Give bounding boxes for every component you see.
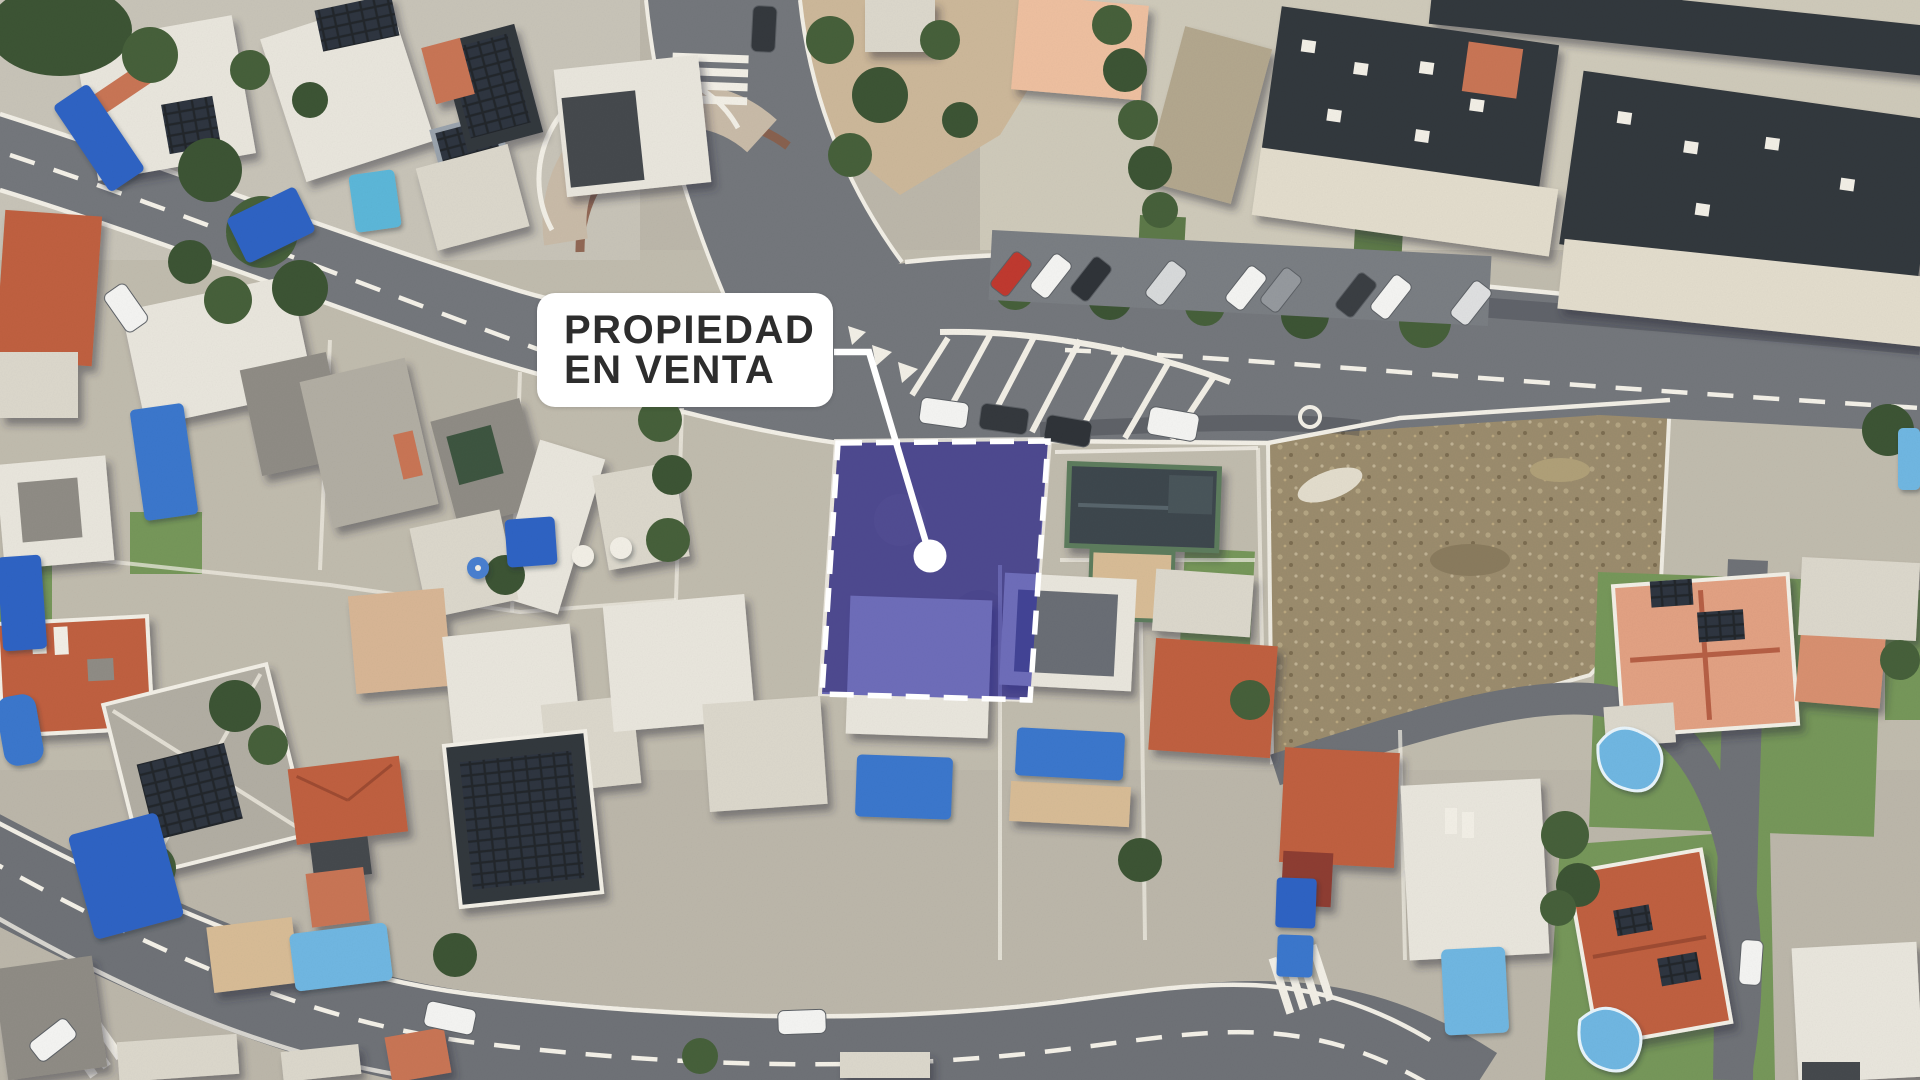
label-line-2: EN VENTA bbox=[564, 350, 833, 390]
satellite-map bbox=[0, 0, 1920, 1080]
satellite-map-canvas: PROPIEDAD EN VENTA bbox=[0, 0, 1920, 1080]
label-line-1: PROPIEDAD bbox=[564, 310, 833, 350]
property-for-sale-label: PROPIEDAD EN VENTA bbox=[537, 293, 833, 407]
property-marker-dot[interactable] bbox=[914, 540, 947, 573]
